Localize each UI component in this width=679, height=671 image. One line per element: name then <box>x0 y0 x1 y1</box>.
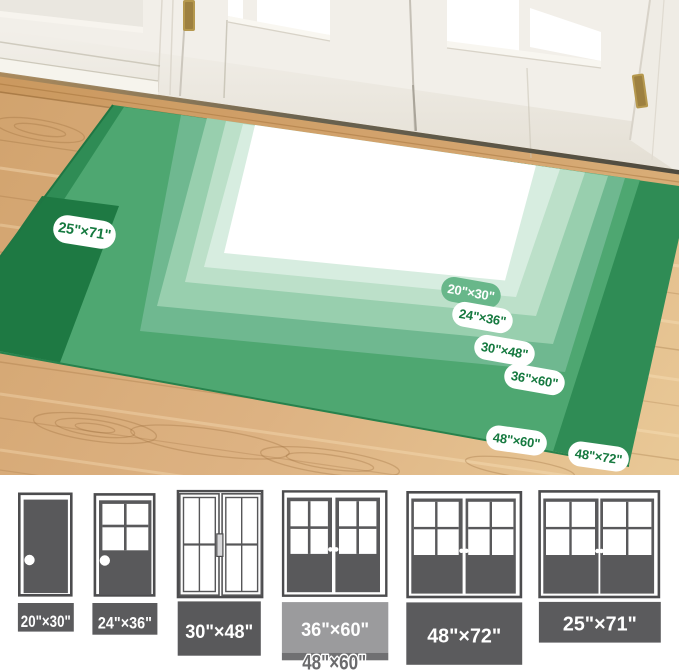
svg-text:24"×36": 24"×36" <box>98 614 152 633</box>
svg-text:20"×30": 20"×30" <box>21 612 71 631</box>
svg-text:48"×60": 48"×60" <box>302 652 366 671</box>
svg-text:48"×72": 48"×72" <box>427 625 501 648</box>
svg-text:36"×60": 36"×60" <box>301 620 369 641</box>
svg-text:30"×48": 30"×48" <box>185 622 253 643</box>
svg-text:25"×71": 25"×71" <box>563 613 637 636</box>
